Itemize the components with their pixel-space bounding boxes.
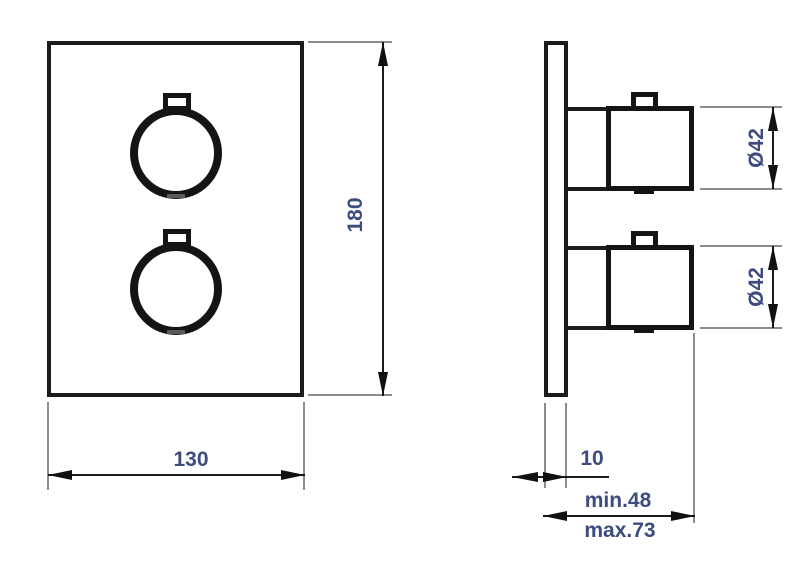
knob-top-neck [568,107,608,191]
knob-bottom-bottom-mark [167,330,185,334]
dimension-label-knob-bottom: Ø42 [746,257,768,317]
knob-bottom-body [606,245,694,330]
knob-top-bottom-mark-side [634,189,654,194]
arrowhead-down [378,372,388,396]
knob-top-bottom-mark [167,194,185,198]
arrowhead-right [671,511,695,521]
arrowhead-right [543,472,567,482]
knob-top-body [606,106,694,191]
arrowhead-up [378,42,388,66]
dimension-line [48,474,305,476]
arrowhead-left [512,472,538,482]
arrowhead-up [768,107,778,131]
dimension-line [382,42,384,396]
dimension-label-depth-max: max.73 [570,520,670,542]
arrowhead-down [768,304,778,328]
arrowhead-right [281,470,305,480]
dimension-label-height: 180 [345,185,367,245]
arrowhead-left [48,470,72,480]
knob-bottom-neck [568,246,608,330]
arrowhead-left [543,511,567,521]
extension-line [693,333,695,523]
dimension-label-depth-min: min.48 [568,490,668,512]
knob-bottom-tab-side [631,231,658,250]
dimension-label-knob-top: Ø42 [746,118,768,178]
knob-top-tab [163,93,191,111]
arrowhead-down [768,165,778,189]
knob-bottom-bottom-mark-side [634,328,654,333]
dimension-label-thickness: 10 [572,448,612,470]
knob-bottom-tab [163,229,191,247]
knob-top-ring [130,107,222,199]
wall-plate-profile [544,41,568,397]
arrowhead-up [768,246,778,270]
knob-bottom-ring [130,243,222,335]
dimension-label-width: 130 [156,449,226,471]
technical-drawing: 180 130 Ø42 [0,0,800,567]
knob-top-tab-side [631,92,658,111]
